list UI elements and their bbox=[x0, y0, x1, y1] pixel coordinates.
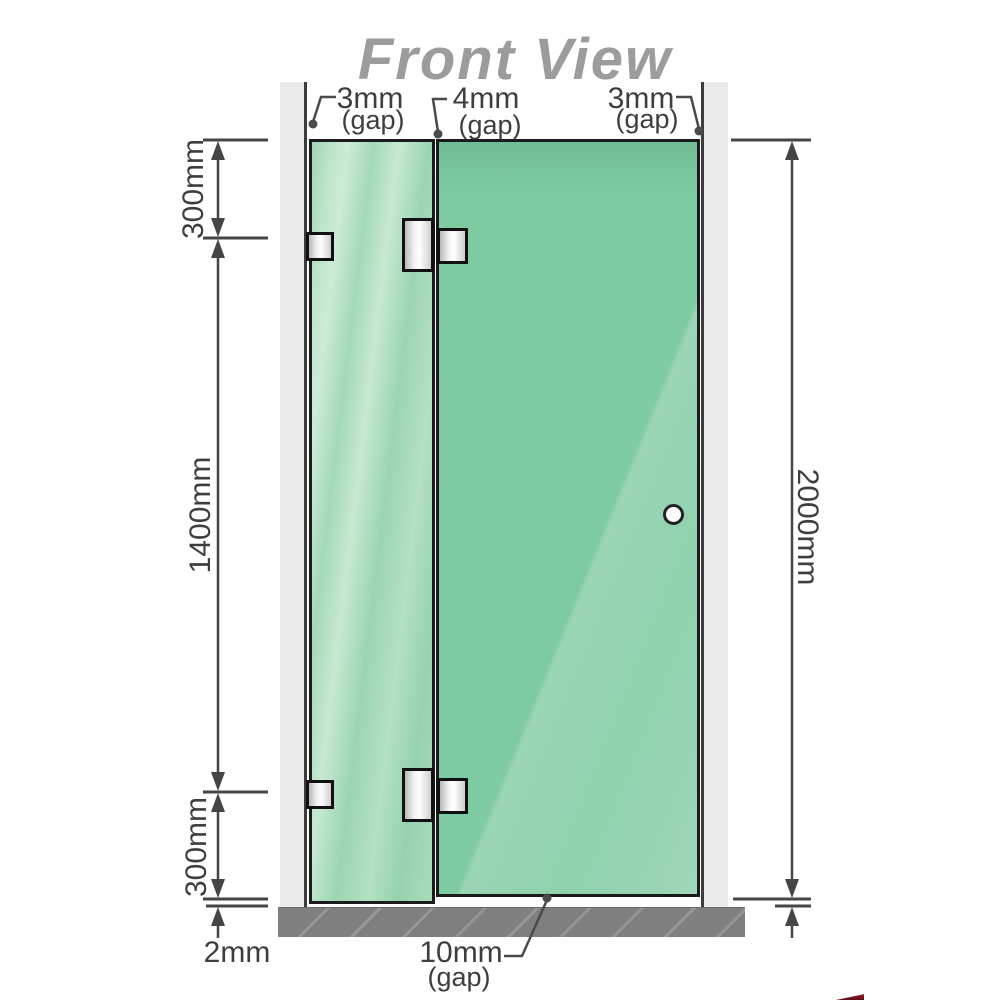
gap-leader-dots bbox=[309, 120, 704, 903]
dimension-arrowheads bbox=[211, 141, 799, 926]
dimension-label-300mm-top: 300mm bbox=[179, 139, 209, 239]
dimension-label-2mm: 2mm bbox=[204, 938, 271, 968]
gap-note-top-left: (gap) bbox=[341, 107, 404, 134]
gap-note-top-right: (gap) bbox=[615, 106, 678, 133]
dimension-ticks bbox=[203, 140, 811, 906]
gap-note-bottom: (gap) bbox=[427, 964, 490, 991]
dimension-lines bbox=[218, 152, 792, 938]
dimension-lines-svg bbox=[0, 0, 1000, 1000]
gap-note-top-middle: (gap) bbox=[458, 112, 521, 139]
dimension-label-1400mm: 1400mm bbox=[186, 457, 216, 574]
front-view-diagram: Front View bbox=[0, 0, 1000, 1000]
dimension-label-300mm-bottom: 300mm bbox=[182, 797, 212, 897]
gap-leader-lines bbox=[313, 97, 699, 956]
dimension-label-2000mm: 2000mm bbox=[792, 469, 822, 586]
